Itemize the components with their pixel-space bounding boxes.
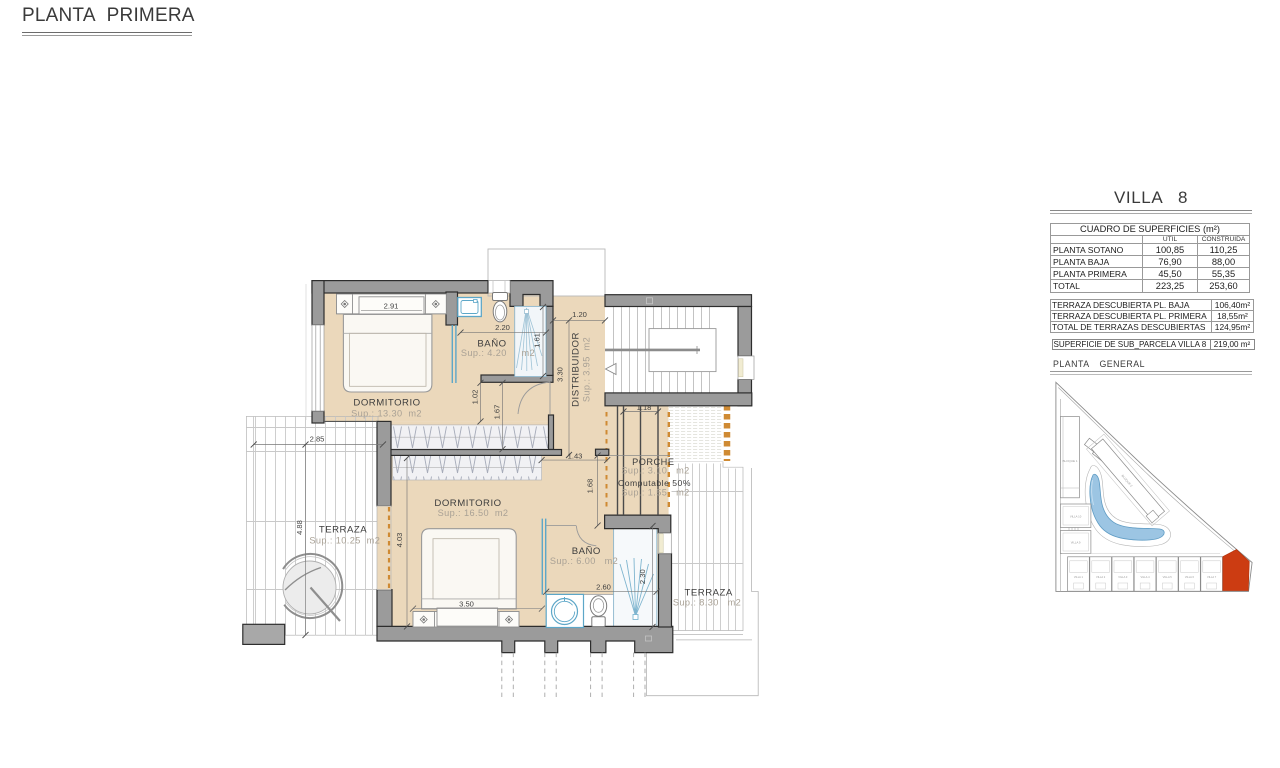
svg-text:1.20: 1.20 — [572, 310, 587, 319]
svg-text:2.60: 2.60 — [596, 582, 611, 591]
svg-text:Sup.: 3.10 m2: Sup.: 3.10 m2 — [621, 466, 689, 476]
svg-text:Computable 50%: Computable 50% — [618, 478, 691, 488]
svg-text:1.68: 1.68 — [586, 479, 595, 494]
svg-text:Sup.: 4.20 m2: Sup.: 4.20 m2 — [461, 348, 535, 358]
svg-text:Sup.: 10.25 m2: Sup.: 10.25 m2 — [309, 536, 380, 546]
svg-text:VILLA 4: VILLA 4 — [1140, 575, 1150, 579]
svg-text:DISTRIBUIDOR: DISTRIBUIDOR — [571, 332, 582, 407]
svg-text:Sup.: 1.55 m2: Sup.: 1.55 m2 — [621, 488, 689, 498]
svg-text:1.61: 1.61 — [533, 333, 542, 348]
svg-text:1.43: 1.43 — [568, 451, 583, 460]
svg-text:2.30: 2.30 — [638, 569, 647, 584]
svg-text:2.20: 2.20 — [495, 323, 510, 332]
svg-text:VILLA 7: VILLA 7 — [1207, 575, 1217, 579]
svg-text:VILLA 10: VILLA 10 — [1070, 515, 1082, 519]
svg-text:4.03: 4.03 — [395, 533, 404, 548]
svg-text:TERRAZA: TERRAZA — [319, 525, 367, 536]
svg-text:VILLA 5: VILLA 5 — [1163, 575, 1173, 579]
svg-text:Sup.: 3.95 m2: Sup.: 3.95 m2 — [582, 337, 592, 402]
svg-text:Sup.: 16.50 m2: Sup.: 16.50 m2 — [438, 508, 509, 518]
svg-text:3.50: 3.50 — [459, 599, 474, 608]
svg-text:VILLA 9: VILLA 9 — [1071, 541, 1081, 545]
svg-text:DORMITORIO: DORMITORIO — [353, 398, 420, 409]
svg-text:BLOQUE 1: BLOQUE 1 — [1062, 459, 1077, 463]
svg-text:2.85: 2.85 — [310, 435, 325, 444]
svg-text:VILLA 1: VILLA 1 — [1074, 575, 1084, 579]
svg-text:2.91: 2.91 — [384, 302, 399, 311]
svg-text:3.30: 3.30 — [556, 367, 565, 382]
svg-text:Sup.: 13.30 m2: Sup.: 13.30 m2 — [351, 409, 422, 419]
svg-text:VILLA 2: VILLA 2 — [1096, 575, 1106, 579]
svg-text:VILLA 3: VILLA 3 — [1118, 575, 1128, 579]
svg-text:Sup.: 8.30 m2: Sup.: 8.30 m2 — [673, 598, 741, 608]
svg-text:1.18: 1.18 — [637, 403, 652, 412]
svg-text:VILLA 6: VILLA 6 — [1185, 575, 1195, 579]
svg-text:1.67: 1.67 — [493, 405, 502, 420]
svg-text:1.02: 1.02 — [470, 390, 479, 405]
svg-text:Sup.: 6.00 m2: Sup.: 6.00 m2 — [550, 556, 618, 566]
svg-text:4.88: 4.88 — [295, 520, 304, 535]
